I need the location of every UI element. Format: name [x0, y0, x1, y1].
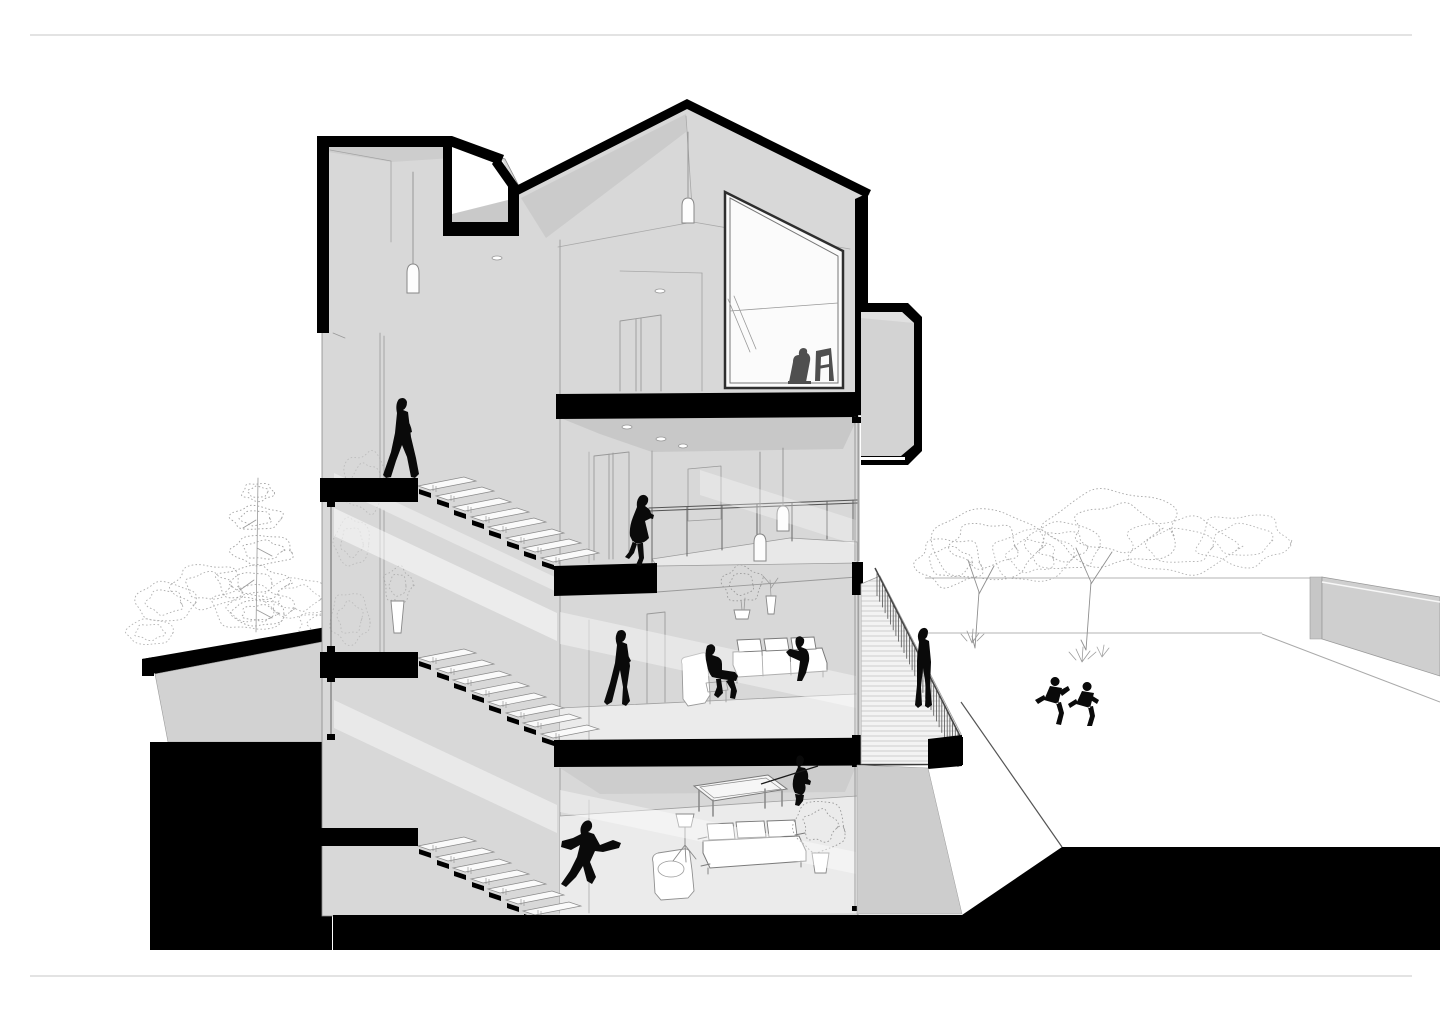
- mullion-connector: [327, 734, 335, 740]
- notch-bottom-band: [443, 222, 519, 236]
- running-kid: [1068, 682, 1099, 726]
- tree-trunk: [968, 560, 994, 648]
- mullion-connector: [852, 735, 861, 740]
- grass-tuft: [1069, 647, 1096, 662]
- tree-canopy: [1196, 515, 1292, 568]
- left-wall-band: [317, 136, 329, 333]
- floor3-slab: [556, 392, 858, 419]
- retaining-wall-cap-end: [142, 657, 154, 676]
- stair-landing-slab: [320, 652, 418, 678]
- bush-canopy: [125, 619, 173, 645]
- stair-landing-slab: [320, 828, 418, 846]
- recessed-light: [622, 425, 632, 429]
- mullion-connector: [327, 501, 335, 507]
- tower-pendant-lamp: [407, 264, 419, 293]
- sofa-main-cushion: [737, 639, 762, 652]
- grass-tuft: [1097, 645, 1109, 657]
- mullion-connector: [327, 676, 335, 682]
- grass-tuft: [961, 629, 984, 643]
- tree-canopy: [931, 509, 1045, 580]
- tree-canopy: [1025, 522, 1101, 569]
- recessed-light: [679, 444, 688, 448]
- pine-tree-tier: [215, 565, 292, 600]
- bay-window-face: [861, 312, 914, 456]
- mullion-connector: [327, 646, 335, 652]
- sofa-main-cushion: [764, 638, 789, 651]
- architectural-section-page: [0, 0, 1440, 1018]
- mullion-connector: [852, 417, 861, 423]
- pendant-lamp: [754, 534, 766, 561]
- tree-canopy: [1127, 516, 1243, 575]
- potted-tree-pot: [734, 610, 750, 619]
- ramp-surface: [861, 576, 961, 764]
- attic-pendant-lamp: [682, 198, 694, 223]
- tree-trunk: [1076, 548, 1112, 650]
- lightwell-side-wall: [857, 765, 962, 914]
- vase-plant: [766, 596, 776, 614]
- running-kid: [1035, 677, 1070, 725]
- pine-tree-tier: [230, 600, 284, 626]
- lightwell-diagonal-edge: [961, 702, 1062, 847]
- stair-landing-slab: [320, 478, 418, 502]
- section-perspective-drawing: [0, 0, 1440, 1018]
- recessed-light: [492, 256, 502, 260]
- bay-window-slit: [861, 457, 905, 460]
- pine-tree-trunk: [240, 478, 272, 632]
- tree-canopy: [914, 539, 983, 588]
- back-wall-edge: [1310, 577, 1322, 639]
- recessed-light: [656, 437, 666, 441]
- fence-base-wall: [928, 735, 962, 769]
- armchair-basement-cushion: [658, 861, 684, 877]
- notch-left-band: [443, 147, 452, 224]
- bush-canopy: [135, 581, 197, 621]
- pine-tree-tier: [229, 505, 283, 529]
- mezzanine-slab: [554, 563, 657, 596]
- recessed-light: [655, 289, 665, 293]
- retaining-wall-mass: [150, 742, 332, 950]
- parapet-top-band: [317, 136, 452, 147]
